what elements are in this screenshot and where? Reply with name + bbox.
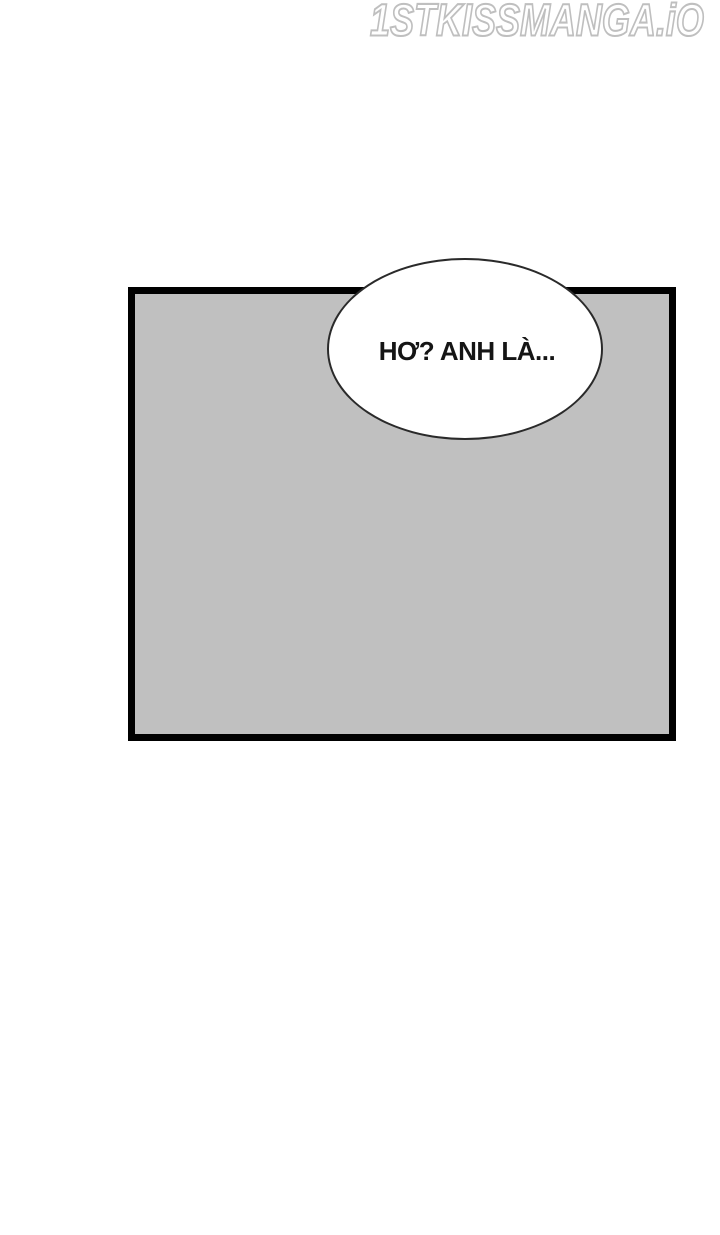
svg-text:1STKISSMANGA.iO: 1STKISSMANGA.iO xyxy=(370,0,704,46)
